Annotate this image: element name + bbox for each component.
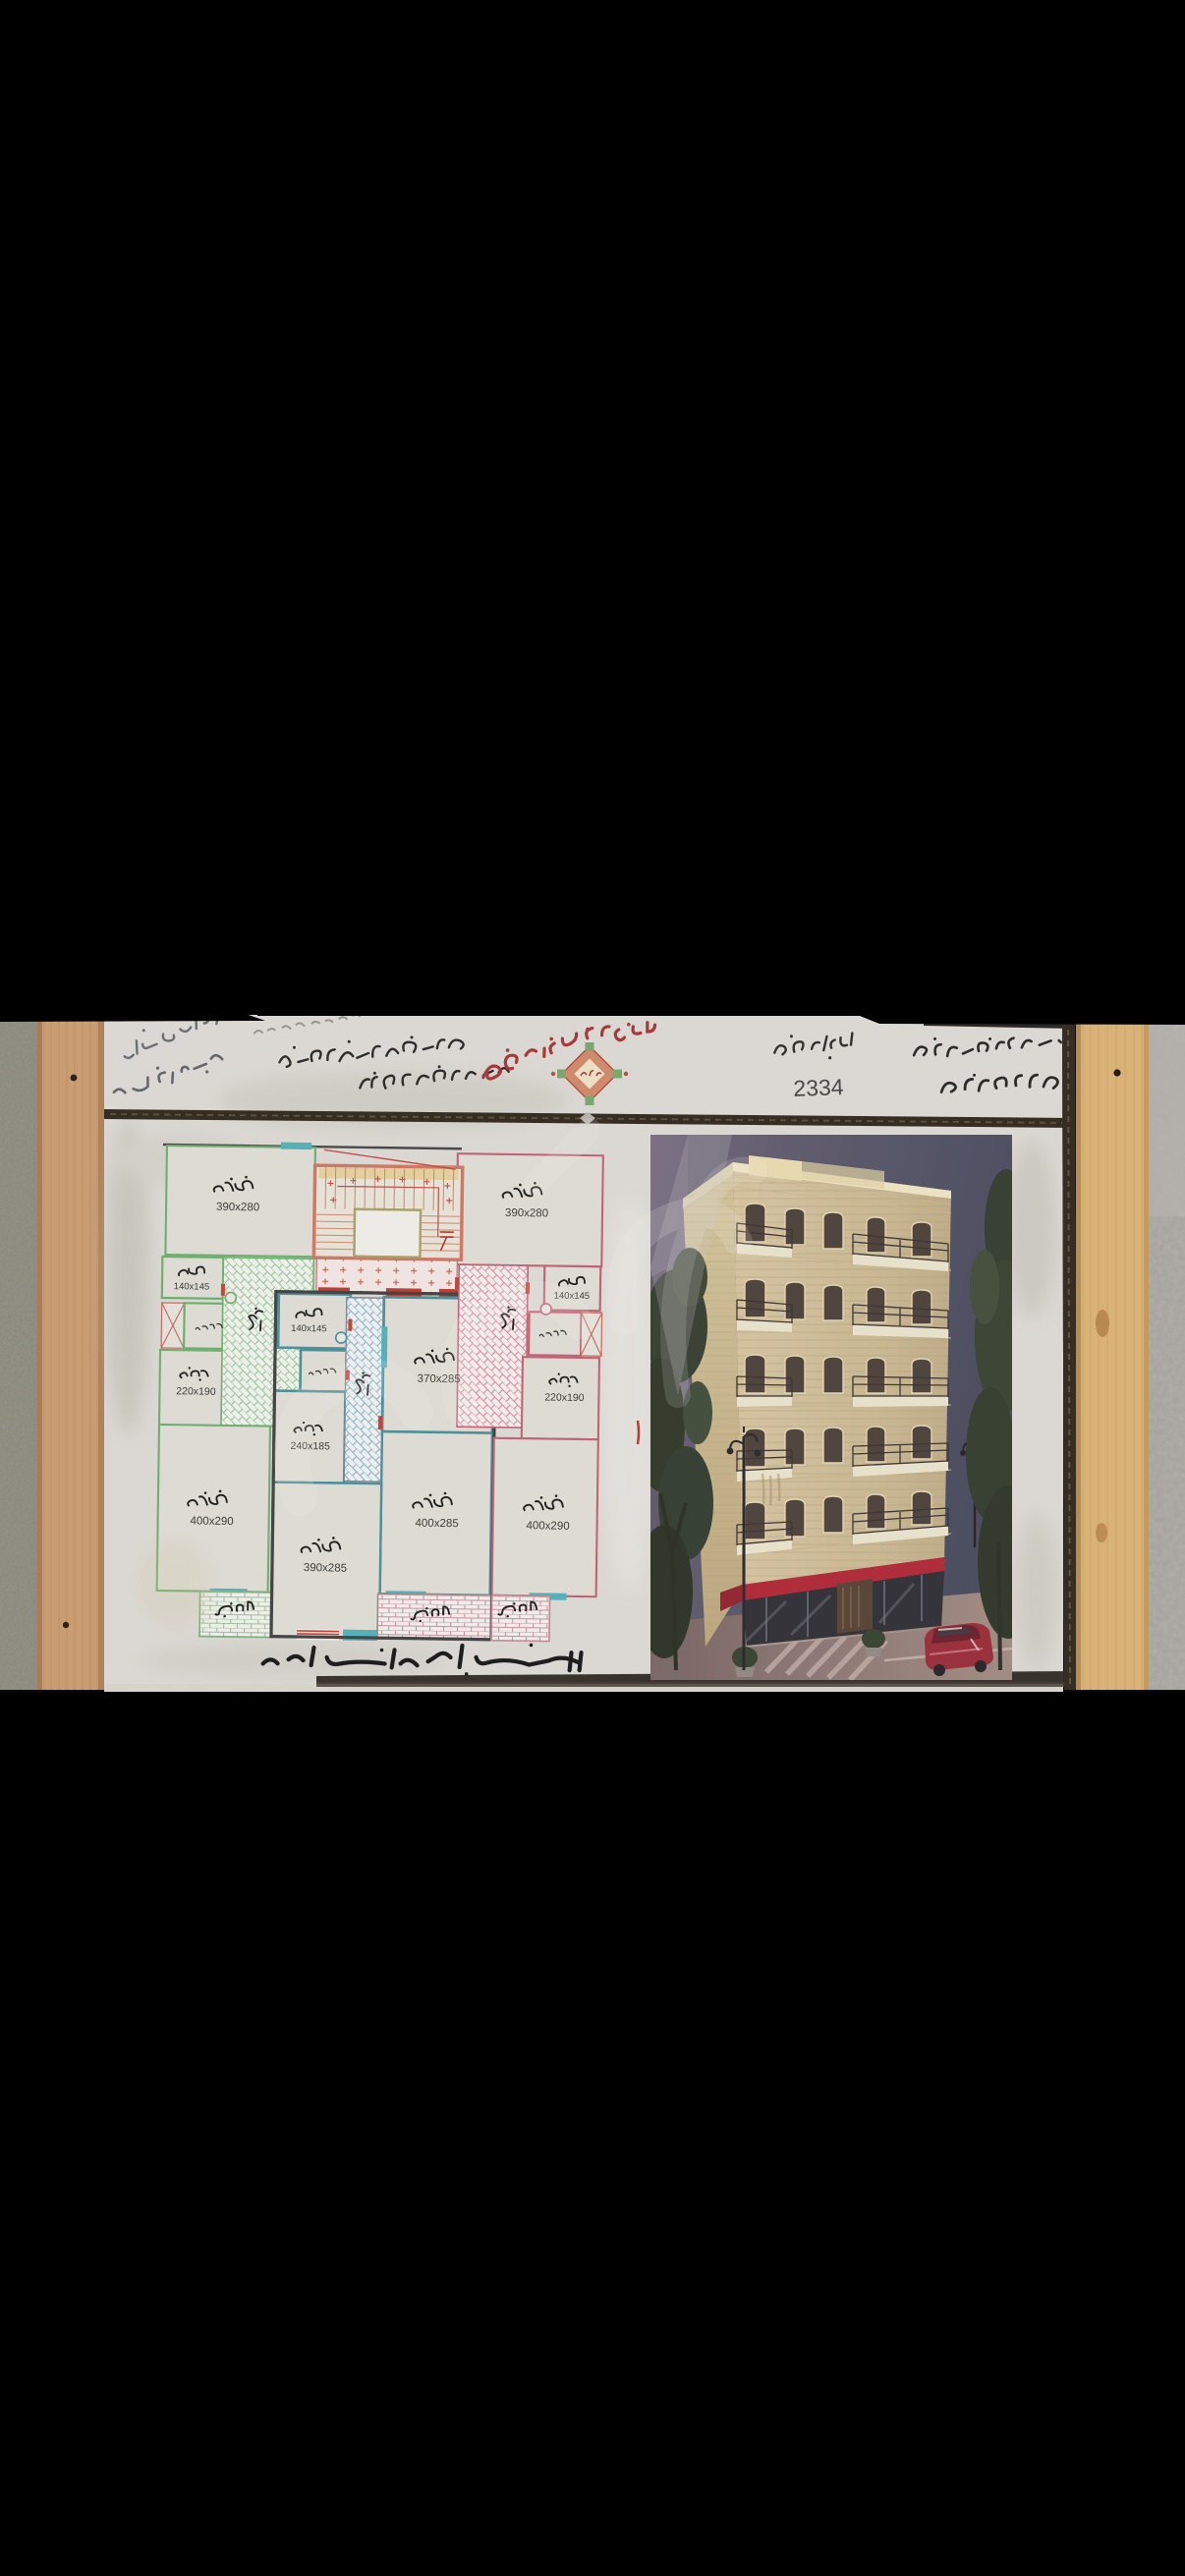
svg-text:400x290: 400x290 xyxy=(526,1520,569,1533)
svg-text:220x190: 220x190 xyxy=(544,1391,585,1404)
svg-text:140x145: 140x145 xyxy=(174,1281,210,1293)
svg-text:390x280: 390x280 xyxy=(505,1207,548,1220)
svg-text:400x285: 400x285 xyxy=(415,1518,458,1531)
svg-text:140x145: 140x145 xyxy=(291,1323,327,1335)
svg-text:400x290: 400x290 xyxy=(190,1515,233,1528)
svg-text:390x285: 390x285 xyxy=(304,1562,347,1575)
svg-text:220x190: 220x190 xyxy=(176,1385,216,1398)
svg-text:390x280: 390x280 xyxy=(216,1202,259,1214)
svg-text:2334: 2334 xyxy=(793,1074,844,1101)
